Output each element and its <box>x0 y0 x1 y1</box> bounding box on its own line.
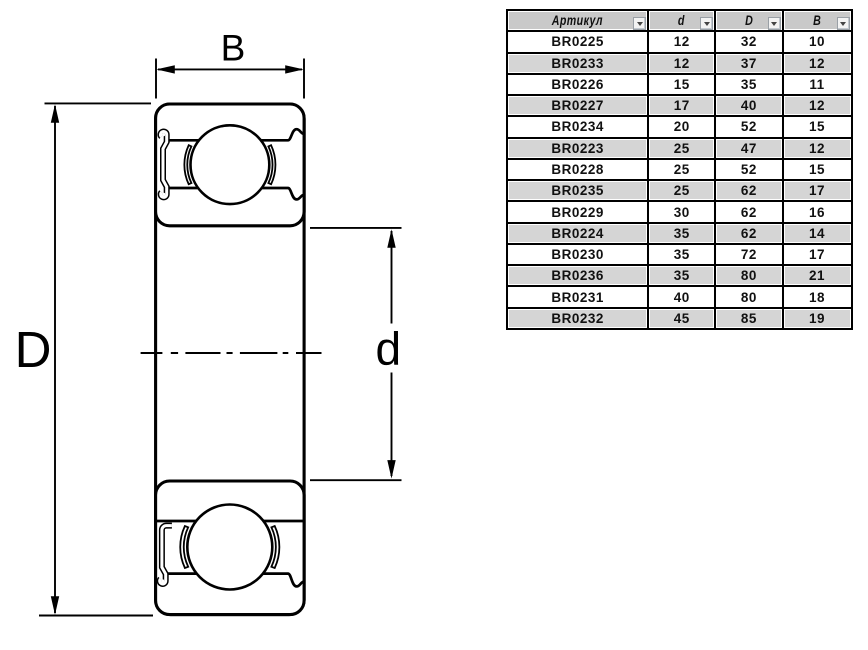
svg-text:d: d <box>376 323 402 375</box>
svg-text:B: B <box>221 28 246 69</box>
svg-text:D: D <box>15 321 52 378</box>
